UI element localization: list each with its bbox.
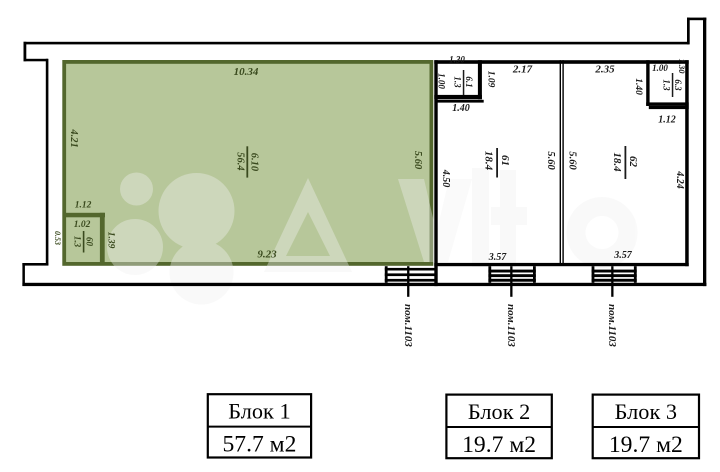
svg-text:57.7 м2: 57.7 м2 [222,432,296,458]
svg-text:пом.1103: пом.1103 [505,304,517,347]
svg-text:5.60: 5.60 [412,151,423,170]
svg-text:Блок 3: Блок 3 [615,399,677,424]
svg-text:1.3: 1.3 [662,79,672,91]
svg-text:1.00: 1.00 [437,73,447,89]
svg-text:19.7 м2: 19.7 м2 [462,432,536,458]
svg-text:18.4: 18.4 [483,151,495,171]
svg-text:10.34: 10.34 [234,66,259,78]
svg-text:1.09: 1.09 [486,71,496,88]
svg-text:1.3: 1.3 [453,76,463,88]
svg-text:9.23: 9.23 [257,249,277,261]
svg-text:Блок 1: Блок 1 [228,399,290,424]
svg-text:6.3: 6.3 [673,79,683,91]
svg-text:1.3: 1.3 [73,236,83,248]
svg-text:1.12: 1.12 [75,201,92,211]
svg-text:1.40: 1.40 [633,78,643,95]
svg-text:2.17: 2.17 [512,64,533,76]
svg-text:Блок 2: Блок 2 [468,399,530,424]
svg-text:1.12: 1.12 [658,115,676,126]
svg-text:61: 61 [499,155,511,166]
svg-text:6.1: 6.1 [464,76,474,87]
svg-text:1.30: 1.30 [449,55,465,65]
svg-text:пом.1103: пом.1103 [402,304,414,347]
svg-text:4.24: 4.24 [674,170,685,189]
svg-text:19.7 м2: 19.7 м2 [609,432,683,458]
svg-text:56.4: 56.4 [235,152,246,170]
svg-text:0.53: 0.53 [53,231,62,245]
svg-text:62: 62 [627,156,639,168]
svg-text:6.10: 6.10 [248,153,259,172]
svg-text:60: 60 [85,237,95,247]
svg-text:5.60: 5.60 [567,151,578,170]
svg-text:1.02: 1.02 [74,220,91,230]
svg-text:1.39: 1.39 [106,232,116,249]
svg-text:2.35: 2.35 [594,64,615,76]
svg-text:1.00: 1.00 [652,63,668,73]
svg-text:4.50: 4.50 [440,169,451,188]
svg-text:пом.1103: пом.1103 [606,304,618,347]
svg-text:18.4: 18.4 [611,152,623,172]
svg-text:5.60: 5.60 [545,151,556,170]
svg-text:1.40: 1.40 [452,103,470,114]
svg-text:1.30: 1.30 [677,59,687,75]
svg-text:3.57: 3.57 [613,250,633,261]
svg-text:4.21: 4.21 [68,128,79,147]
svg-text:3.57: 3.57 [488,252,508,263]
